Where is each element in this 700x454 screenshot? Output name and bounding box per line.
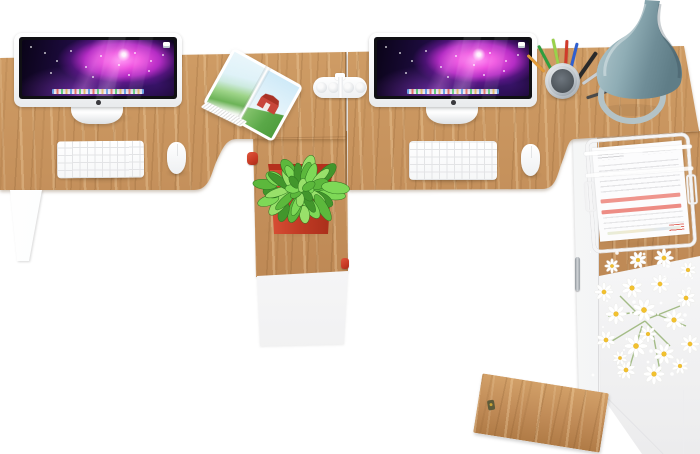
document-tray (585, 133, 697, 254)
speaker-center-band (338, 77, 343, 98)
monitor-bezel (19, 37, 177, 99)
pen-cup (545, 63, 580, 99)
speaker-grille-icon (343, 82, 354, 93)
speaker-grille-icon (316, 82, 327, 93)
monitor-body (369, 33, 537, 107)
left-keyboard (57, 141, 144, 179)
lamp-cone (597, 0, 682, 99)
tray-side-wire (686, 174, 698, 205)
monitor-body (14, 33, 182, 107)
daisy-bouquet (590, 246, 700, 394)
key-in-lock-icon (487, 400, 495, 411)
apple-logo-icon (96, 100, 101, 105)
screen-reflection (374, 37, 532, 99)
right-mouse (521, 144, 540, 176)
tray-side-wire (584, 181, 596, 212)
cone-desk-lamp (583, 0, 700, 128)
scene-two-person-desk-top-view (0, 0, 700, 454)
left-mouse (167, 142, 186, 174)
speaker-grille-icon (355, 82, 366, 93)
pill-speaker (313, 77, 367, 98)
left-monitor (14, 33, 182, 127)
daisy-flowers (590, 248, 700, 384)
right-monitor (369, 33, 537, 127)
screen-reflection (19, 37, 177, 99)
monitor-bezel (374, 37, 532, 99)
right-keyboard (409, 141, 497, 180)
potted-plant (248, 146, 352, 246)
apple-logo-icon (451, 100, 456, 105)
